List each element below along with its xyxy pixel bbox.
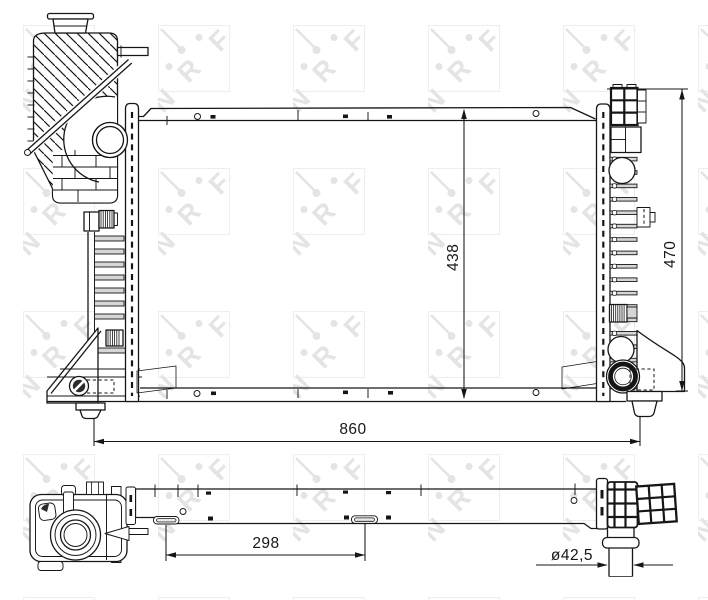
technical-drawing-page: N R F: [0, 0, 708, 600]
left-side-plate: [126, 104, 139, 402]
right-side-plate: [597, 104, 611, 402]
mounting-slot-left: [154, 517, 180, 525]
connector-grid-end: [636, 484, 677, 524]
dimension-label-860: 860: [339, 421, 366, 438]
right-lower-port-upper: [608, 337, 634, 363]
left-screw-fitting: [84, 211, 118, 232]
tank-hose-port-front: [93, 123, 128, 158]
filler-cap-bottom: [51, 510, 101, 560]
mounting-slot-right: [352, 516, 378, 524]
tank-flange: [126, 487, 136, 525]
top-clamp: [87, 482, 104, 495]
filler-cap: [48, 14, 94, 34]
radiator-technical-drawing: N R F: [0, 0, 708, 600]
hex-fitting: [38, 502, 57, 521]
tank-bottom-tab: [38, 562, 63, 571]
right-top-connector: [611, 85, 646, 153]
dimension-label-470: 470: [662, 241, 679, 268]
dimension-label-298: 298: [252, 535, 279, 552]
right-lower-port-hose: [607, 360, 640, 393]
dimension-label-438: 438: [445, 244, 462, 271]
drain-plug: [70, 377, 89, 396]
dimension-label-diameter: ø42,5: [551, 547, 593, 564]
right-upper-port: [609, 158, 635, 184]
lower-screw-fitting: [106, 330, 123, 346]
top-outlet-pipe: [118, 46, 149, 58]
